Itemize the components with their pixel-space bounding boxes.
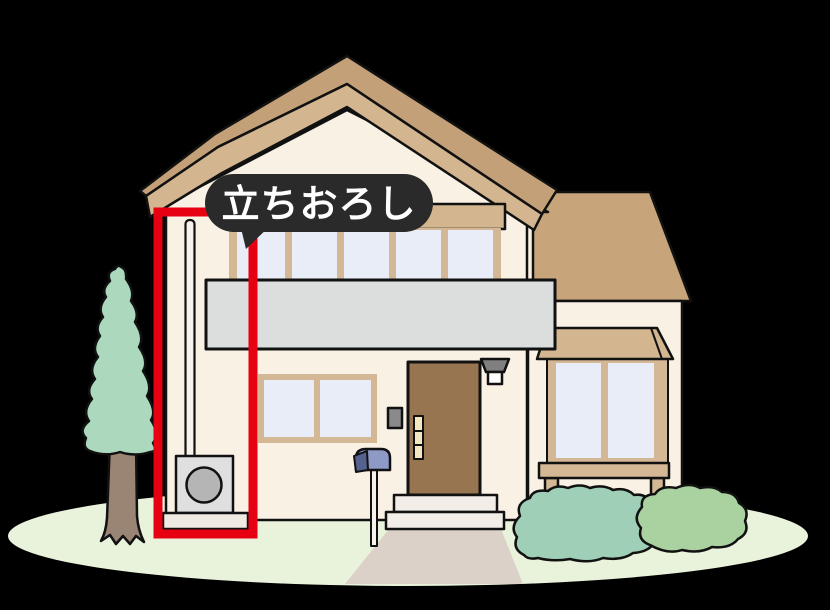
speech-bubble-label: 立ちおろし (221, 182, 416, 226)
window-mullion (230, 229, 237, 281)
left-window-pane (264, 380, 314, 437)
house-scene: 立ちおろし (0, 0, 830, 610)
step-lower (386, 512, 504, 529)
wing-window-pane (556, 363, 601, 458)
unit-base-slab (163, 513, 248, 529)
door-window-strip (414, 416, 423, 459)
balcony-railing (206, 280, 555, 349)
window-mullion (493, 229, 500, 281)
mailbox-post (371, 468, 377, 546)
step-upper (394, 495, 497, 512)
porch-lamp-shade (481, 359, 509, 372)
window-mullion (285, 229, 292, 281)
left-window-pane (320, 380, 371, 437)
window-mullion (337, 229, 344, 281)
window-mullion (441, 229, 448, 281)
bench-board (539, 463, 669, 478)
porch-lamp-bulb (488, 372, 502, 384)
mailbox-lid (354, 451, 368, 472)
upper-window-band (230, 229, 500, 281)
drain-pipe (186, 220, 195, 460)
bush-right (637, 485, 747, 552)
doorbell (388, 408, 402, 428)
wing-window-pane (608, 363, 654, 458)
window-mullion (389, 229, 396, 281)
ac-fan (187, 468, 222, 503)
illustration-house-tachioroshi: 立ちおろし (0, 0, 830, 610)
